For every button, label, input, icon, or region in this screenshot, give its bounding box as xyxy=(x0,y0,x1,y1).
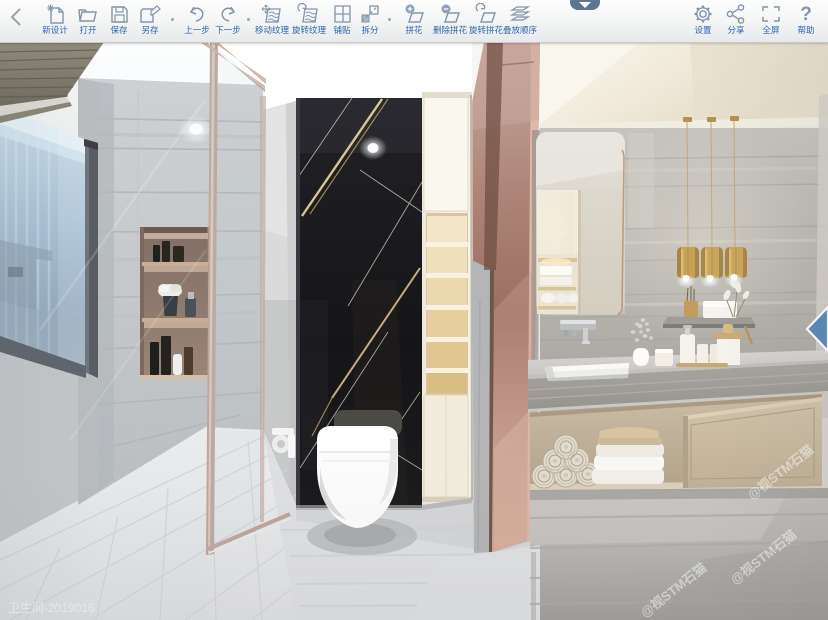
svg-text:卫生间-2019016: 卫生间-2019016 xyxy=(8,601,95,615)
svg-text:?: ? xyxy=(800,4,812,25)
